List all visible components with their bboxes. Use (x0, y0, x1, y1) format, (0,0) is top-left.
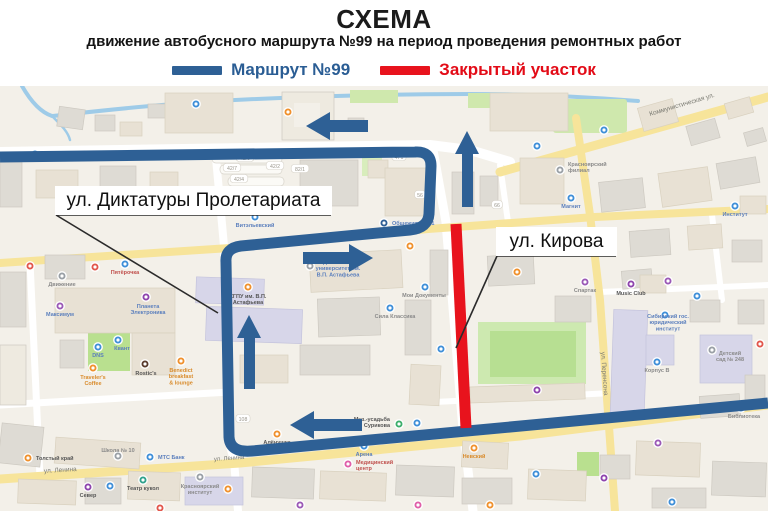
poi-label: Магнит (561, 204, 581, 210)
legend-item-route: Маршрут №99 (172, 60, 350, 80)
poi-icon-dot (308, 264, 311, 267)
poi-label: Библиотека (728, 413, 761, 420)
poi-icon-dot (253, 215, 256, 218)
poi-label: Сила Классика (375, 314, 417, 320)
poi-label: Витэльевский (236, 222, 275, 229)
street-callout-kirova: ул. Кирова (496, 227, 617, 256)
poi-label: Медицинский (356, 459, 393, 466)
poi-icon-dot (108, 484, 111, 487)
poi-icon-dot (415, 421, 418, 424)
poi-label: Traveler's (80, 375, 105, 381)
poi-label: Спартак (574, 288, 596, 294)
building-number: 42/7 (227, 166, 237, 172)
poi-label: Music Club (616, 291, 646, 297)
poi-label: Школа № 10 (101, 448, 134, 454)
poi-label: сад № 248 (716, 357, 744, 363)
poi-icon-dot (93, 265, 96, 268)
poi-icon-dot (710, 348, 713, 351)
legend-route-label: Маршрут №99 (231, 60, 350, 80)
poi-icon-dot (96, 345, 99, 348)
poi-label: институт (188, 490, 213, 496)
poi-label: Астафьева (233, 299, 264, 306)
poi-icon-dot (116, 454, 119, 457)
building-number: 42/2 (270, 164, 280, 170)
poi-icon-dot (144, 295, 147, 298)
building-number: 66 (494, 203, 500, 209)
poi-label: Максимум (46, 312, 74, 318)
poi-icon-dot (246, 285, 249, 288)
building-number: 56 (417, 193, 423, 199)
poi-label: Квант (114, 346, 130, 352)
poi-label: Красноярский (568, 161, 607, 168)
page-subtitle: движение автобусного маршрута №99 на пер… (0, 33, 768, 50)
poi-icon-dot (558, 168, 561, 171)
poi-icon-dot (226, 487, 229, 490)
poi-label: Толстый край (36, 455, 74, 462)
poi-icon-dot (423, 285, 426, 288)
poi-icon-dot (535, 144, 538, 147)
poi-label: & lounge (169, 380, 193, 386)
building-number: 42/4 (234, 177, 244, 183)
poi-label: юридический (649, 319, 686, 326)
poi-icon-dot (569, 196, 572, 199)
poi-label: breakfast (169, 374, 194, 380)
header: СХЕМА движение автобусного маршрута №99 … (0, 0, 768, 86)
poi-label: Арена (356, 452, 374, 458)
poi-icon-dot (583, 280, 586, 283)
poi-icon-dot (123, 262, 126, 265)
poi-icon-dot (655, 360, 658, 363)
poi-label: Детский (719, 350, 741, 357)
poi-icon-dot (298, 503, 301, 506)
poi-label: Корпус В (645, 368, 670, 374)
poi-icon-dot (666, 279, 669, 282)
poi-icon-dot (91, 366, 94, 369)
poi-label: Пятёрочка (111, 270, 140, 276)
poi-label: Benedict (169, 368, 192, 374)
poi-icon-dot (416, 503, 419, 506)
poi-icon-dot (602, 128, 605, 131)
poi-icon-dot (439, 347, 442, 350)
poi-icon-dot (179, 359, 182, 362)
poi-label: институт (656, 326, 681, 332)
street-callout-diktatury-proletariata: ул. Диктатуры Пролетариата (55, 186, 332, 215)
poi-icon-dot (758, 342, 761, 345)
poi-label: Электроника (131, 310, 167, 316)
poi-icon-dot (515, 270, 518, 273)
poi-label: Движение (48, 282, 75, 288)
poi-icon-dot (194, 102, 197, 105)
poi-icon-dot (488, 503, 491, 506)
poi-icon-dot (397, 422, 400, 425)
poi-label: Сурикова (364, 423, 391, 429)
poi-label: филиал (568, 167, 590, 174)
poi-icon-dot (408, 244, 411, 247)
poi-icon-dot (143, 362, 146, 365)
legend-closed-label: Закрытый участок (439, 60, 596, 80)
poi-icon-dot (656, 441, 659, 444)
poi-label: Институт (722, 212, 747, 218)
building-number: 108 (239, 417, 248, 423)
route-line-swatch (172, 66, 222, 75)
poi-icon-dot (86, 485, 89, 488)
poi-label: КГПУ им. В.П. (230, 294, 267, 300)
poi-icon-dot (58, 304, 61, 307)
poi-icon-dot (60, 274, 63, 277)
poi-icon-dot (535, 388, 538, 391)
building-number: 82/1 (295, 167, 305, 173)
closed-line-swatch (380, 66, 430, 75)
poi-label: Север (80, 493, 97, 499)
poi-icon-dot (28, 264, 31, 267)
poi-icon-dot (602, 476, 605, 479)
poi-icon-dot (670, 500, 673, 503)
legend: Маршрут №99 Закрытый участок (0, 58, 768, 82)
poi-icon-dot (275, 432, 278, 435)
poi-label: Мои Документы (402, 293, 446, 299)
poi-label: Coffee (84, 381, 101, 387)
poi-label: В.П. Астафьева (317, 271, 361, 278)
poi-icon-dot (141, 478, 144, 481)
poi-label: Невский (463, 453, 486, 460)
legend-item-closed: Закрытый участок (380, 60, 596, 80)
poi-label: Планета (137, 304, 161, 310)
page-title: СХЕМА (0, 4, 768, 35)
poi-icon-dot (629, 282, 632, 285)
poi-label: МТС Банк (158, 455, 185, 461)
poi-label: центр (356, 466, 372, 472)
poi-icon-dot (733, 204, 736, 207)
poi-icon-dot (534, 472, 537, 475)
poi-icon-dot (286, 110, 289, 113)
poi-label: DNS (92, 353, 104, 359)
poi-icon-dot (346, 462, 349, 465)
poi-icon-dot (158, 506, 161, 509)
poi-label: Сибирский гос. (647, 313, 689, 320)
poi-icon-dot (388, 306, 391, 309)
poi-label: Театр кукол (127, 486, 159, 492)
poi-icon-dot (116, 338, 119, 341)
poi-icon-dot (382, 221, 385, 224)
poi-icon-dot (695, 294, 698, 297)
poi-icon-dot (472, 446, 475, 449)
poi-icon-dot (198, 475, 201, 478)
poi-icon-dot (26, 456, 29, 459)
poi-label: Красноярский (181, 483, 220, 490)
poi-icon-dot (148, 455, 151, 458)
poi-label: Rostic's (135, 371, 156, 377)
